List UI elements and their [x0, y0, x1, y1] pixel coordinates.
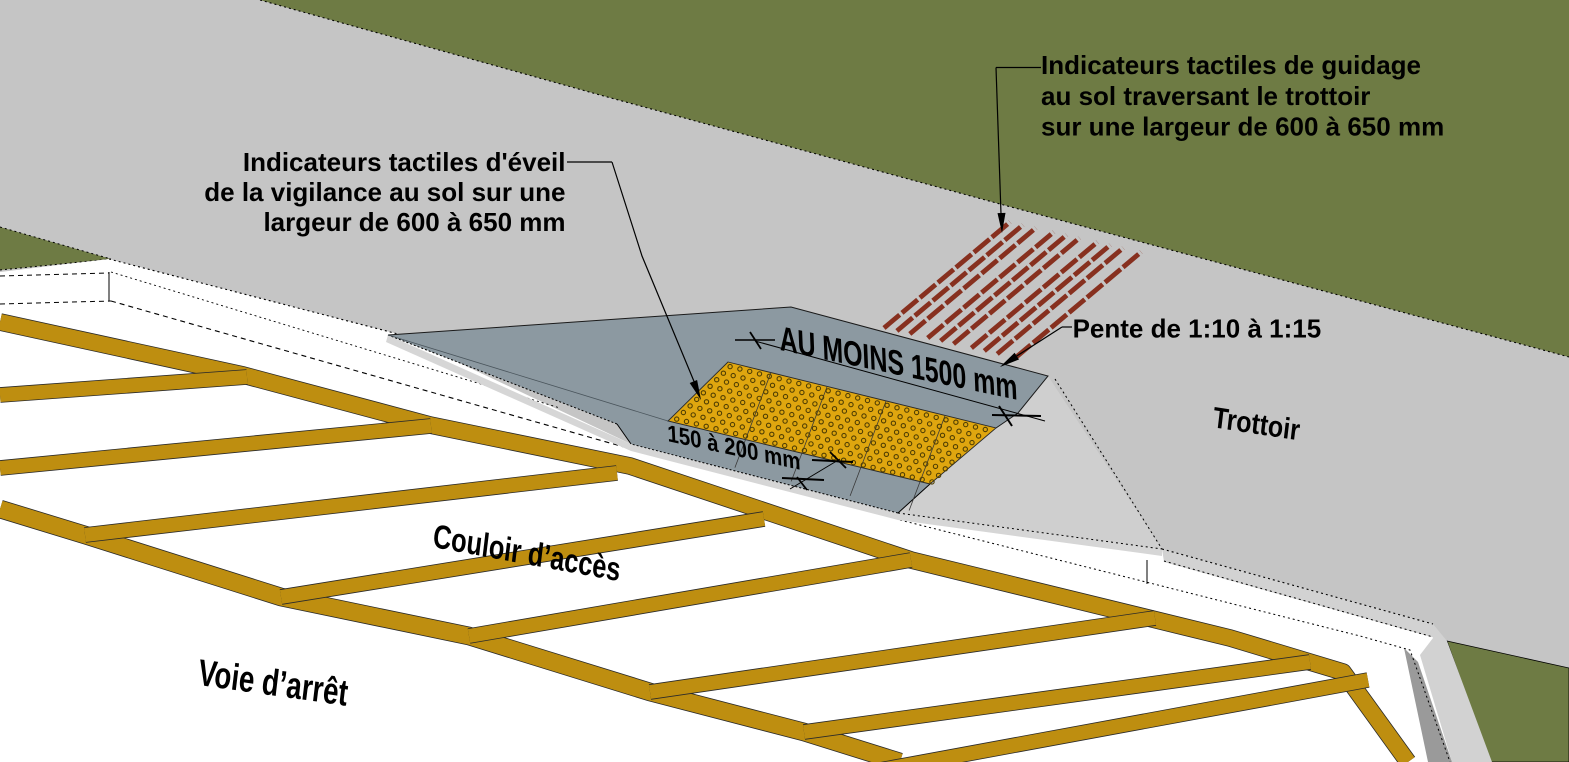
- svg-text:largeur de 600 à 650 mm: largeur de 600 à 650 mm: [263, 207, 565, 237]
- svg-text:Pente de 1:10 à 1:15: Pente de 1:10 à 1:15: [1073, 314, 1322, 344]
- svg-text:sur une largeur de 600 à 650 m: sur une largeur de 600 à 650 mm: [1041, 111, 1444, 141]
- svg-text:Indicateurs tactiles d'éveil: Indicateurs tactiles d'éveil: [243, 147, 566, 177]
- svg-text:Indicateurs tactiles de guidag: Indicateurs tactiles de guidage: [1041, 50, 1421, 80]
- svg-text:de la vigilance au sol sur une: de la vigilance au sol sur une: [204, 177, 565, 207]
- svg-text:au sol traversant le trottoir: au sol traversant le trottoir: [1041, 81, 1370, 111]
